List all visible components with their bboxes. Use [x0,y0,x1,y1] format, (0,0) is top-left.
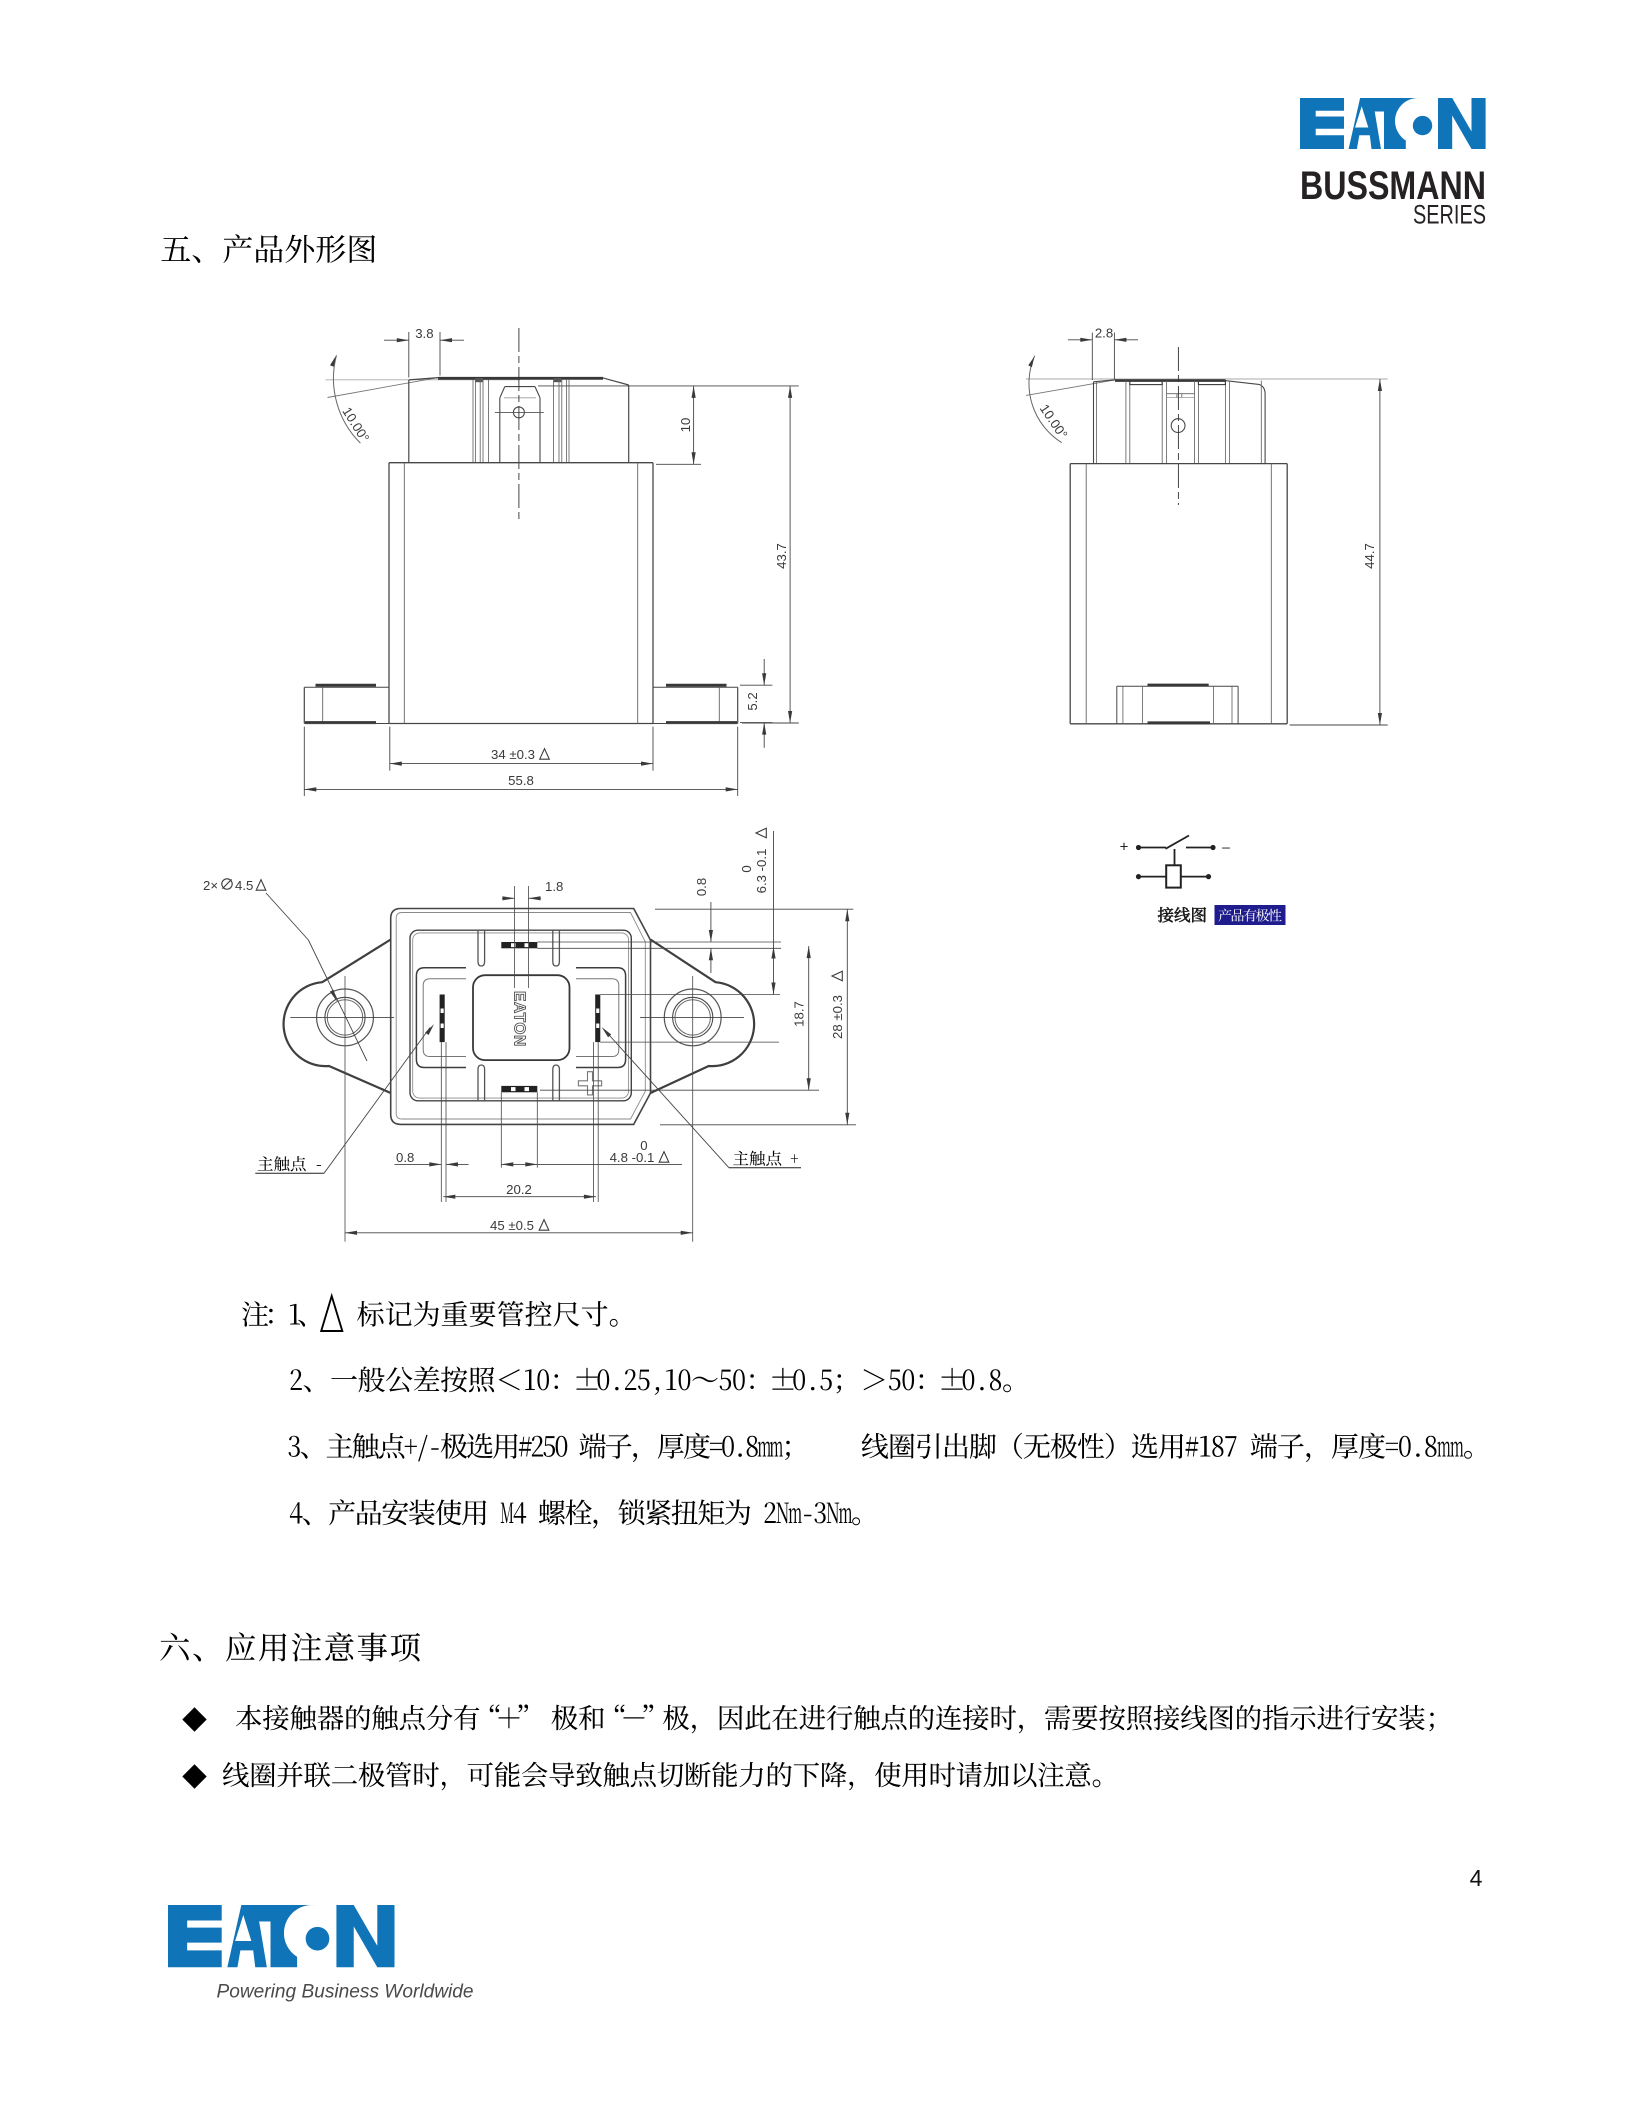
svg-text:SERIES: SERIES [1413,200,1486,230]
svg-text:44.7: 44.7 [1362,543,1377,569]
svg-text:18.7: 18.7 [792,1001,807,1027]
svg-text:34 ±0.3: 34 ±0.3 [491,747,535,762]
svg-text:20.2: 20.2 [506,1182,532,1197]
svg-text:55.8: 55.8 [508,773,534,788]
svg-text:3.8: 3.8 [415,326,433,341]
svg-text:4.5: 4.5 [235,878,253,893]
svg-text:28 ±0.3: 28 ±0.3 [830,995,845,1039]
svg-text:+: + [1120,839,1129,856]
svg-text:0.8: 0.8 [396,1150,414,1165]
svg-text:5.2: 5.2 [745,692,760,710]
svg-text:10.00°: 10.00° [1037,401,1071,441]
svg-text:0: 0 [640,1138,647,1153]
svg-text:2×: 2× [203,878,218,893]
svg-text:4: 4 [1470,1865,1483,1891]
svg-text:1.8: 1.8 [545,879,563,894]
svg-text:10: 10 [678,418,693,433]
svg-text:6.3 -0.1: 6.3 -0.1 [754,849,769,894]
svg-text:45 ±0.5: 45 ±0.5 [490,1218,534,1233]
svg-text:EATON: EATON [511,991,528,1047]
svg-text:2.8: 2.8 [1095,326,1113,341]
svg-text:–: – [1222,839,1230,855]
svg-text:0: 0 [739,865,754,872]
svg-text:10.00°: 10.00° [339,404,372,444]
svg-text:43.7: 43.7 [774,543,789,569]
svg-text:0.8: 0.8 [694,878,709,896]
svg-text:Powering Business Worldwide: Powering Business Worldwide [217,1981,474,2003]
